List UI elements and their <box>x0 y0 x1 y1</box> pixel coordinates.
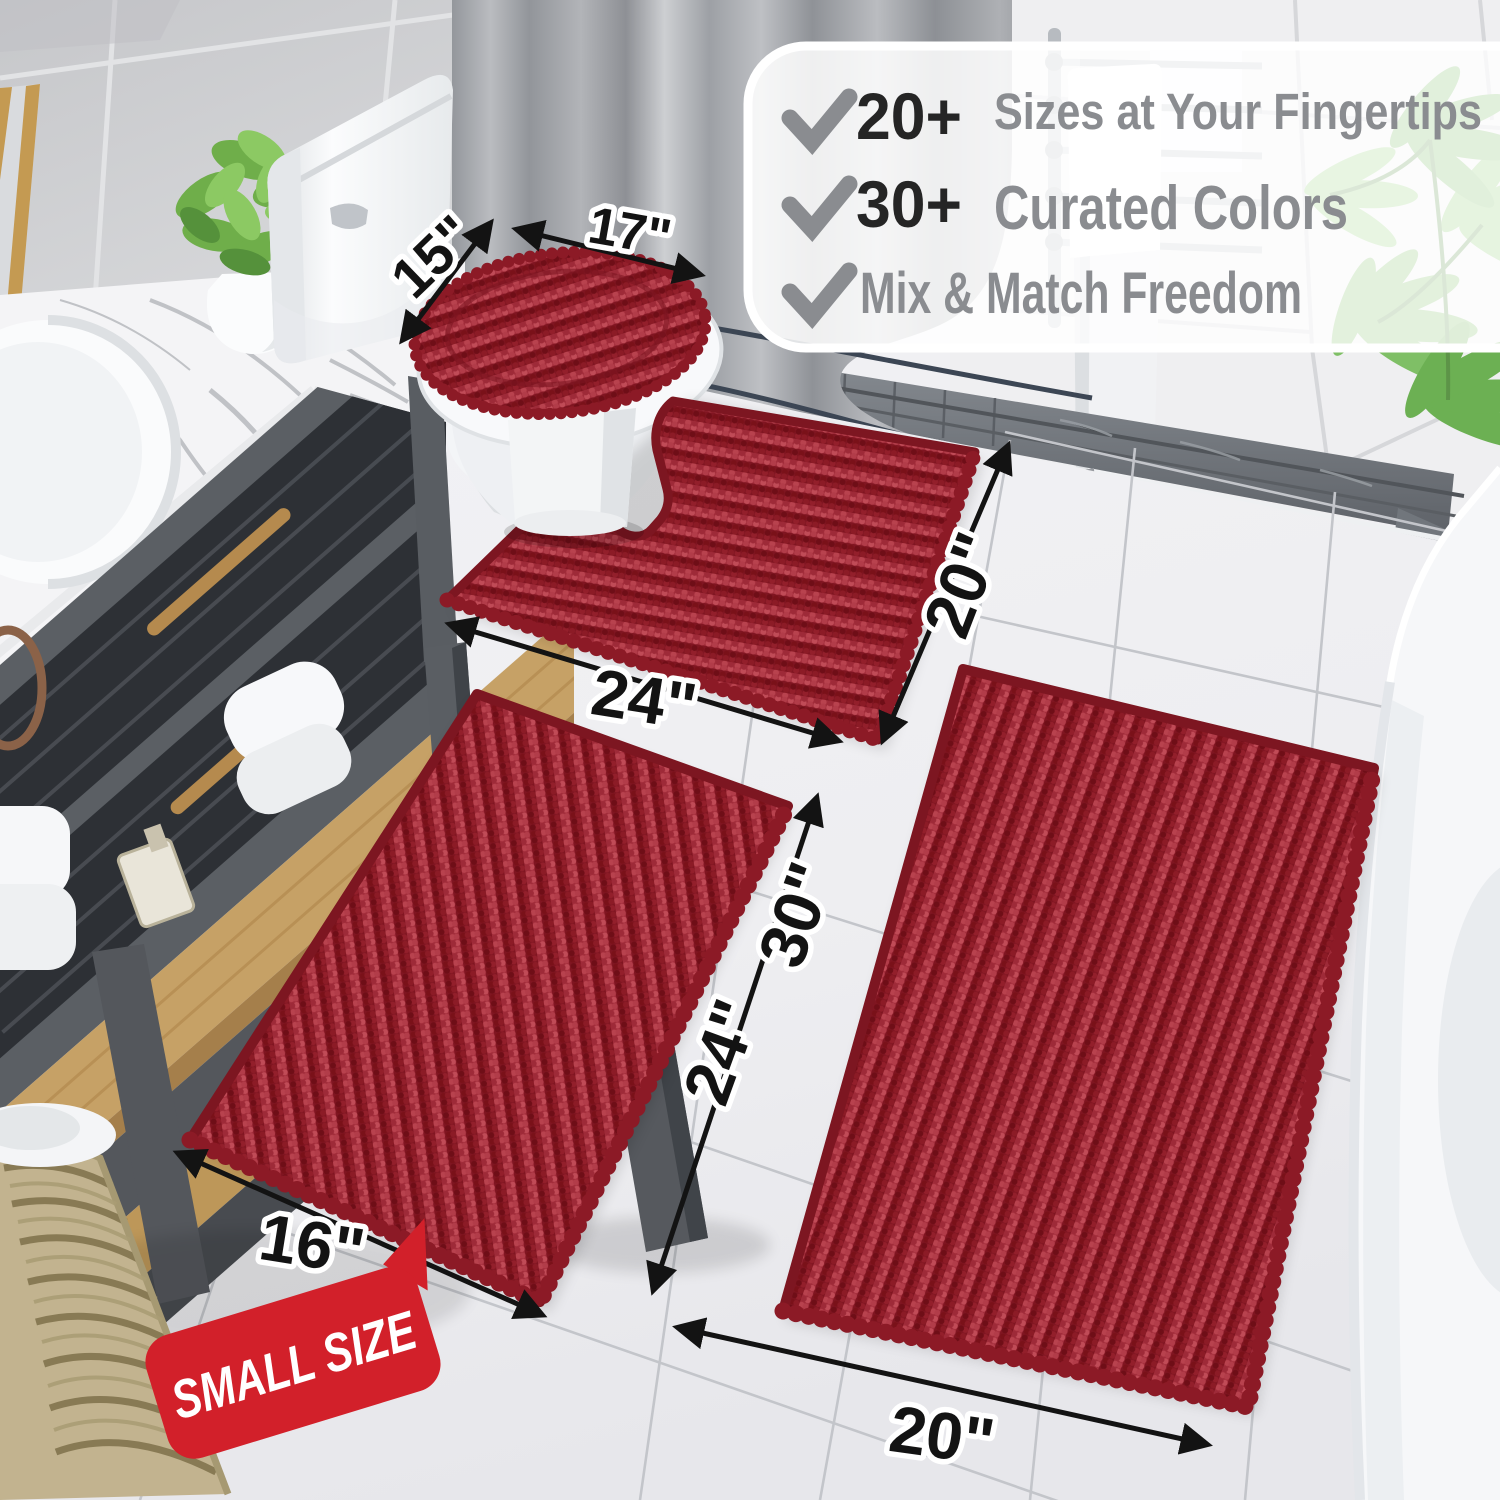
svg-text:Curated Colors: Curated Colors <box>994 174 1348 243</box>
svg-text:Mix & Match Freedom: Mix & Match Freedom <box>860 261 1302 326</box>
svg-text:20+: 20+ <box>856 79 962 153</box>
svg-text:20": 20" <box>885 1391 999 1479</box>
svg-text:Sizes at Your Fingertips: Sizes at Your Fingertips <box>994 83 1482 140</box>
svg-text:30+: 30+ <box>856 167 962 241</box>
